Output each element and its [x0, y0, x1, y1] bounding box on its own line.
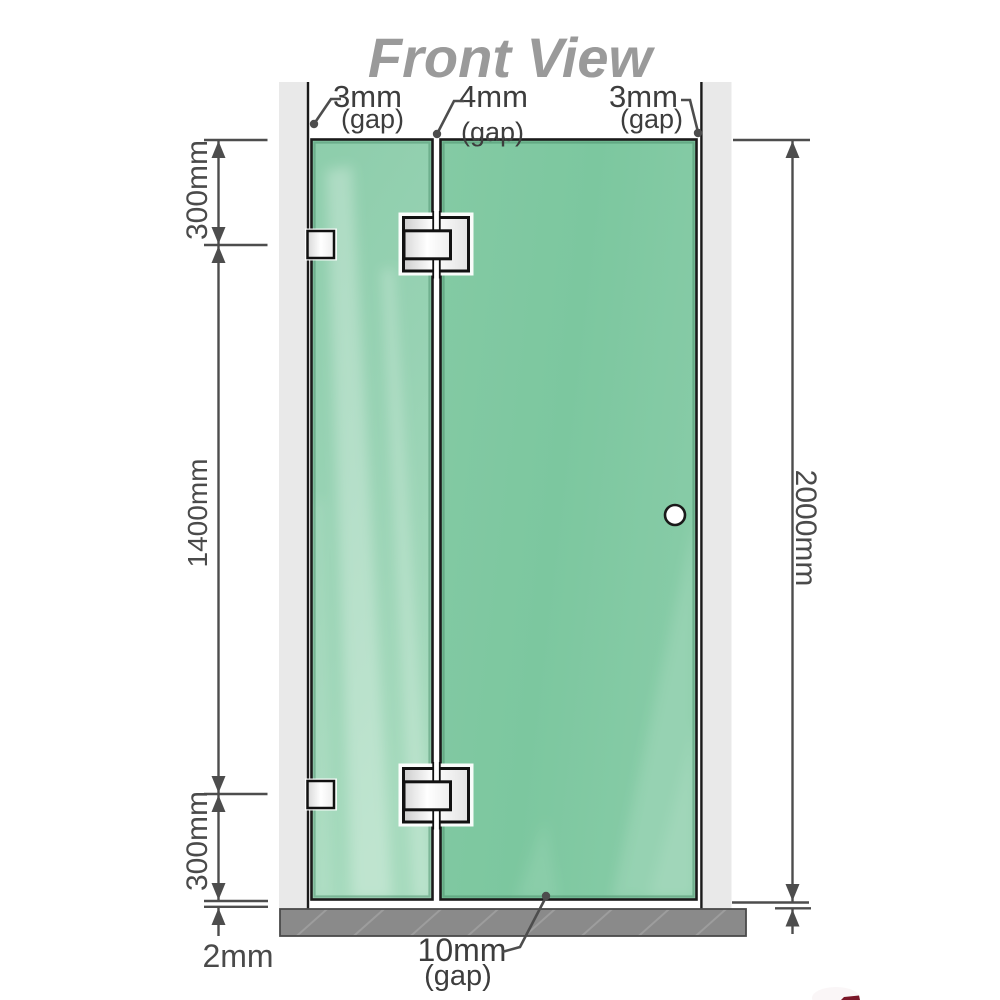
- svg-text:4mm: 4mm: [459, 79, 528, 114]
- svg-text:(gap): (gap): [461, 117, 524, 147]
- svg-text:1400mm: 1400mm: [182, 459, 213, 568]
- svg-text:2mm: 2mm: [202, 938, 273, 974]
- svg-text:2000mm: 2000mm: [789, 470, 822, 587]
- svg-text:300mm: 300mm: [181, 791, 214, 891]
- svg-text:(gap): (gap): [424, 960, 492, 992]
- svg-text:300mm: 300mm: [181, 140, 214, 240]
- svg-text:(gap): (gap): [341, 104, 404, 134]
- svg-text:(gap): (gap): [620, 104, 683, 134]
